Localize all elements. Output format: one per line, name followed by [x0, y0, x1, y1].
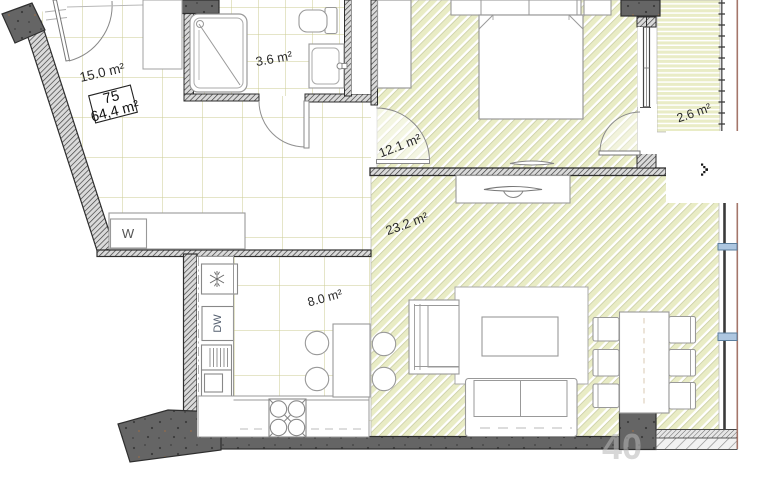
svg-text:W: W	[122, 226, 135, 241]
svg-text:DW: DW	[212, 314, 224, 333]
svg-text:40: 40	[602, 426, 642, 467]
